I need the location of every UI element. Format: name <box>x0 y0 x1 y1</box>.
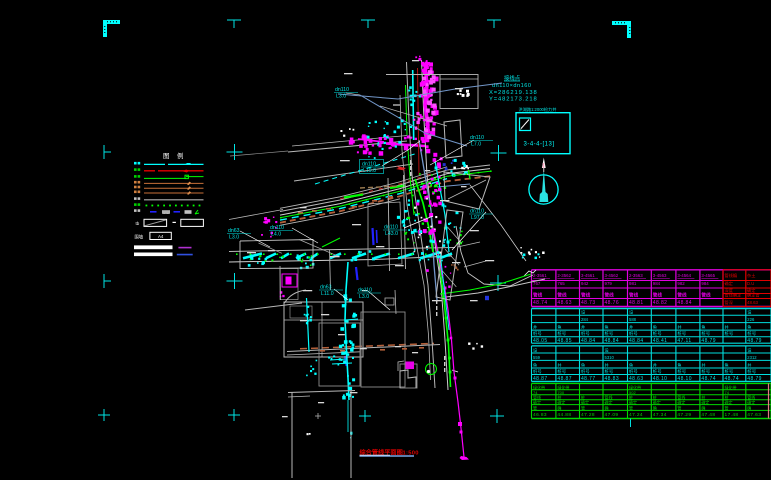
svg-text:L4.0: L4.0 <box>271 232 281 238</box>
svg-text:dn63: dn63 <box>228 228 240 234</box>
svg-text:47.11: 47.11 <box>677 338 691 344</box>
svg-text:鱼: 鱼 <box>533 361 537 367</box>
svg-text:48.05: 48.05 <box>533 338 548 344</box>
svg-text:桩号: 桩号 <box>677 330 686 337</box>
svg-text:984: 984 <box>701 281 709 286</box>
svg-text:48.87: 48.87 <box>557 376 572 382</box>
svg-text:226: 226 <box>747 317 755 322</box>
svg-text:48.79: 48.79 <box>747 338 762 344</box>
svg-text:鱼: 鱼 <box>725 361 729 367</box>
svg-text:47.24: 47.24 <box>629 412 643 418</box>
svg-text:鱼: 鱼 <box>605 324 609 330</box>
svg-text:井: 井 <box>581 324 585 331</box>
svg-text:确定: 确定 <box>747 399 755 405</box>
svg-text:绿化带: 绿化带 <box>533 384 545 390</box>
svg-text:Y=482173.218: Y=482173.218 <box>489 97 538 103</box>
svg-text:确定: 确定 <box>581 399 589 405</box>
svg-text:确定: 确定 <box>677 399 685 405</box>
svg-text:井: 井 <box>557 361 561 368</box>
svg-text:井: 井 <box>653 361 657 368</box>
svg-text:5310: 5310 <box>605 355 615 360</box>
svg-text:确: 确 <box>653 405 657 411</box>
svg-text:确定: 确定 <box>533 399 541 405</box>
svg-text:dn110: dn110 <box>270 225 284 231</box>
svg-text:绿化带: 绿化带 <box>629 384 641 390</box>
svg-text:桩号: 桩号 <box>629 368 638 375</box>
svg-text:48.82: 48.82 <box>653 300 668 306</box>
svg-text:鱼: 鱼 <box>557 324 561 330</box>
svg-text:48.84: 48.84 <box>677 300 692 306</box>
svg-text:确定: 确定 <box>653 399 661 405</box>
svg-text:鱼: 鱼 <box>581 361 585 367</box>
svg-text:2-3561: 2-3561 <box>533 273 547 278</box>
svg-text:L43.0: L43.0 <box>385 231 398 237</box>
svg-text:2-3563: 2-3563 <box>629 273 643 278</box>
svg-text:桩号: 桩号 <box>581 330 590 337</box>
svg-text:48.84: 48.84 <box>629 338 644 344</box>
svg-text:管深: 管深 <box>725 299 733 306</box>
svg-text:桩号: 桩号 <box>701 368 710 375</box>
svg-text:桩号: 桩号 <box>701 330 710 337</box>
svg-text:dn110: dn110 <box>470 209 484 215</box>
svg-text:48.84: 48.84 <box>581 338 596 344</box>
svg-text:井: 井 <box>605 361 609 368</box>
svg-text:48.10: 48.10 <box>677 376 692 382</box>
svg-text:2-3562: 2-3562 <box>557 273 571 278</box>
svg-text:管线: 管线 <box>677 292 687 299</box>
svg-text:确: 确 <box>701 405 705 411</box>
svg-text:dn110: dn110 <box>335 87 349 93</box>
svg-text:管线: 管线 <box>557 292 567 299</box>
svg-text:管线: 管线 <box>701 292 711 299</box>
svg-text:44.88: 44.88 <box>557 412 571 418</box>
svg-text:48.10: 48.10 <box>653 376 668 382</box>
svg-text:桩号: 桩号 <box>725 368 734 375</box>
svg-text:979: 979 <box>605 281 613 286</box>
svg-text:桩号: 桩号 <box>605 330 614 337</box>
svg-text:井: 井 <box>747 361 751 368</box>
svg-text:48.63: 48.63 <box>557 300 572 306</box>
svg-text:48.74: 48.74 <box>725 376 740 382</box>
svg-text:dn110: dn110 <box>470 135 484 141</box>
svg-text:47.34: 47.34 <box>653 412 667 418</box>
svg-text:桩号: 桩号 <box>629 330 638 337</box>
svg-text:942: 942 <box>581 281 589 286</box>
svg-text:桩号: 桩号 <box>557 330 566 337</box>
svg-text:48.76: 48.76 <box>605 300 620 306</box>
svg-text:桩号: 桩号 <box>653 368 662 375</box>
svg-text:井: 井 <box>677 324 681 331</box>
svg-text:3-4561: 3-4561 <box>581 273 595 278</box>
svg-text:984: 984 <box>653 281 661 286</box>
svg-text:L97.0: L97.0 <box>471 215 484 221</box>
svg-text:鱼: 鱼 <box>653 324 657 330</box>
svg-text:井: 井 <box>629 324 633 331</box>
svg-text:确: 确 <box>605 405 609 411</box>
svg-text:管线编: 管线编 <box>725 272 738 279</box>
svg-text:48.79: 48.79 <box>701 338 716 344</box>
svg-text:L3.0: L3.0 <box>229 235 239 241</box>
svg-text:dn110: dn110 <box>362 162 376 168</box>
svg-text:48.73: 48.73 <box>581 300 596 306</box>
svg-text:管: 管 <box>629 405 633 411</box>
svg-text:桩号: 桩号 <box>605 368 614 375</box>
svg-text:管线: 管线 <box>533 292 543 299</box>
svg-text:47.48: 47.48 <box>701 412 715 418</box>
svg-text:井: 井 <box>725 324 729 331</box>
svg-text:48.77: 48.77 <box>581 376 596 382</box>
svg-text:桩号: 桩号 <box>677 368 686 375</box>
svg-text:杂土: 杂土 <box>747 272 755 278</box>
svg-text:鱼: 鱼 <box>747 324 751 330</box>
svg-text:48.87: 48.87 <box>533 376 548 382</box>
svg-text:48.63: 48.63 <box>629 376 644 382</box>
svg-text:48.41: 48.41 <box>653 338 668 344</box>
svg-text:确定: 确定 <box>725 280 733 287</box>
svg-text:48.74: 48.74 <box>701 376 716 382</box>
svg-text:559: 559 <box>533 355 541 360</box>
svg-text:47.28: 47.28 <box>581 412 595 418</box>
svg-text:588: 588 <box>629 317 637 322</box>
svg-text:L19.0: L19.0 <box>363 168 376 174</box>
svg-text:管: 管 <box>581 405 585 411</box>
svg-text:图: 图 <box>163 152 170 160</box>
svg-text:桩号: 桩号 <box>725 330 734 337</box>
svg-text:管: 管 <box>725 405 729 411</box>
svg-text:管: 管 <box>533 405 537 411</box>
svg-text:桩号: 桩号 <box>747 330 756 337</box>
svg-text:桩号: 桩号 <box>533 368 542 375</box>
svg-text:桩号: 桩号 <box>533 330 542 337</box>
svg-text:tb: tb <box>136 221 140 226</box>
svg-text:X=286219.138: X=286219.138 <box>489 90 538 96</box>
svg-text:管: 管 <box>677 405 681 411</box>
svg-text:3-4-4-[13]: 3-4-4-[13] <box>524 142 555 148</box>
svg-text:dn63: dn63 <box>320 285 332 291</box>
svg-text:绿化带: 绿化带 <box>557 384 569 390</box>
svg-text:3-4562: 3-4562 <box>605 273 619 278</box>
svg-text:48.63: 48.63 <box>747 300 759 305</box>
svg-text:确定: 确定 <box>725 399 733 405</box>
svg-text:982: 982 <box>677 281 685 286</box>
svg-text:48.79: 48.79 <box>747 376 762 382</box>
svg-text:48.84: 48.84 <box>605 338 620 344</box>
svg-text:D.U: D.U <box>747 281 754 286</box>
svg-text:L3.0: L3.0 <box>336 94 346 100</box>
svg-text:981: 981 <box>629 281 637 286</box>
svg-text:桩号: 桩号 <box>747 368 756 375</box>
svg-text:确: 确 <box>557 405 561 411</box>
svg-text:284: 284 <box>581 317 589 322</box>
svg-text:47.29: 47.29 <box>677 412 691 418</box>
svg-text:管线: 管线 <box>653 292 663 299</box>
svg-text:管线: 管线 <box>629 292 639 299</box>
svg-text:确定: 确定 <box>557 399 565 405</box>
svg-text:鱼: 鱼 <box>629 361 633 367</box>
svg-text:鱼: 鱼 <box>677 361 681 367</box>
svg-text:确定: 确定 <box>629 399 637 405</box>
svg-text:46.83: 46.83 <box>533 412 547 418</box>
svg-text:管线: 管线 <box>581 292 591 299</box>
svg-text:L11.0: L11.0 <box>321 291 334 297</box>
svg-text:48.83: 48.83 <box>605 376 620 382</box>
svg-text:48.74: 48.74 <box>533 300 548 306</box>
svg-text:17.48: 17.48 <box>725 412 739 418</box>
svg-text:井: 井 <box>533 324 537 331</box>
svg-text:围墙: 围墙 <box>135 234 144 241</box>
svg-text:例: 例 <box>177 151 184 160</box>
svg-text:鱼: 鱼 <box>701 324 705 330</box>
svg-text:dn110: dn110 <box>384 225 398 231</box>
svg-text:管线: 管线 <box>605 292 615 299</box>
svg-text:L7.0: L7.0 <box>471 142 481 148</box>
svg-text:48.81: 48.81 <box>629 300 644 306</box>
svg-text:765: 765 <box>557 281 565 286</box>
svg-text:确定管: 确定管 <box>747 292 760 299</box>
svg-text:A4: A4 <box>158 234 164 239</box>
svg-text:3-4564: 3-4564 <box>677 273 691 278</box>
svg-text:确: 确 <box>747 405 751 411</box>
svg-text:3-4565: 3-4565 <box>701 273 715 278</box>
svg-text:47.09: 47.09 <box>605 412 619 418</box>
svg-text:L3.0: L3.0 <box>359 294 369 300</box>
svg-text:桩号: 桩号 <box>581 368 590 375</box>
svg-text:确定: 确定 <box>701 399 709 405</box>
svg-text:洪湖路1:2000检力井: 洪湖路1:2000检力井 <box>519 106 557 113</box>
svg-text:48.85: 48.85 <box>557 338 572 344</box>
svg-text:桩号: 桩号 <box>557 368 566 375</box>
svg-text:确定: 确定 <box>605 399 613 405</box>
svg-text:2312: 2312 <box>747 355 757 360</box>
svg-text:47.63: 47.63 <box>747 412 761 418</box>
svg-text:dn110: dn110 <box>358 288 372 294</box>
svg-text:3-4563: 3-4563 <box>653 273 667 278</box>
svg-text:井: 井 <box>701 361 705 368</box>
svg-text:绿化带: 绿化带 <box>725 384 737 390</box>
svg-text:管线确定: 管线确定 <box>725 292 742 299</box>
svg-text:桩号: 桩号 <box>653 330 662 337</box>
